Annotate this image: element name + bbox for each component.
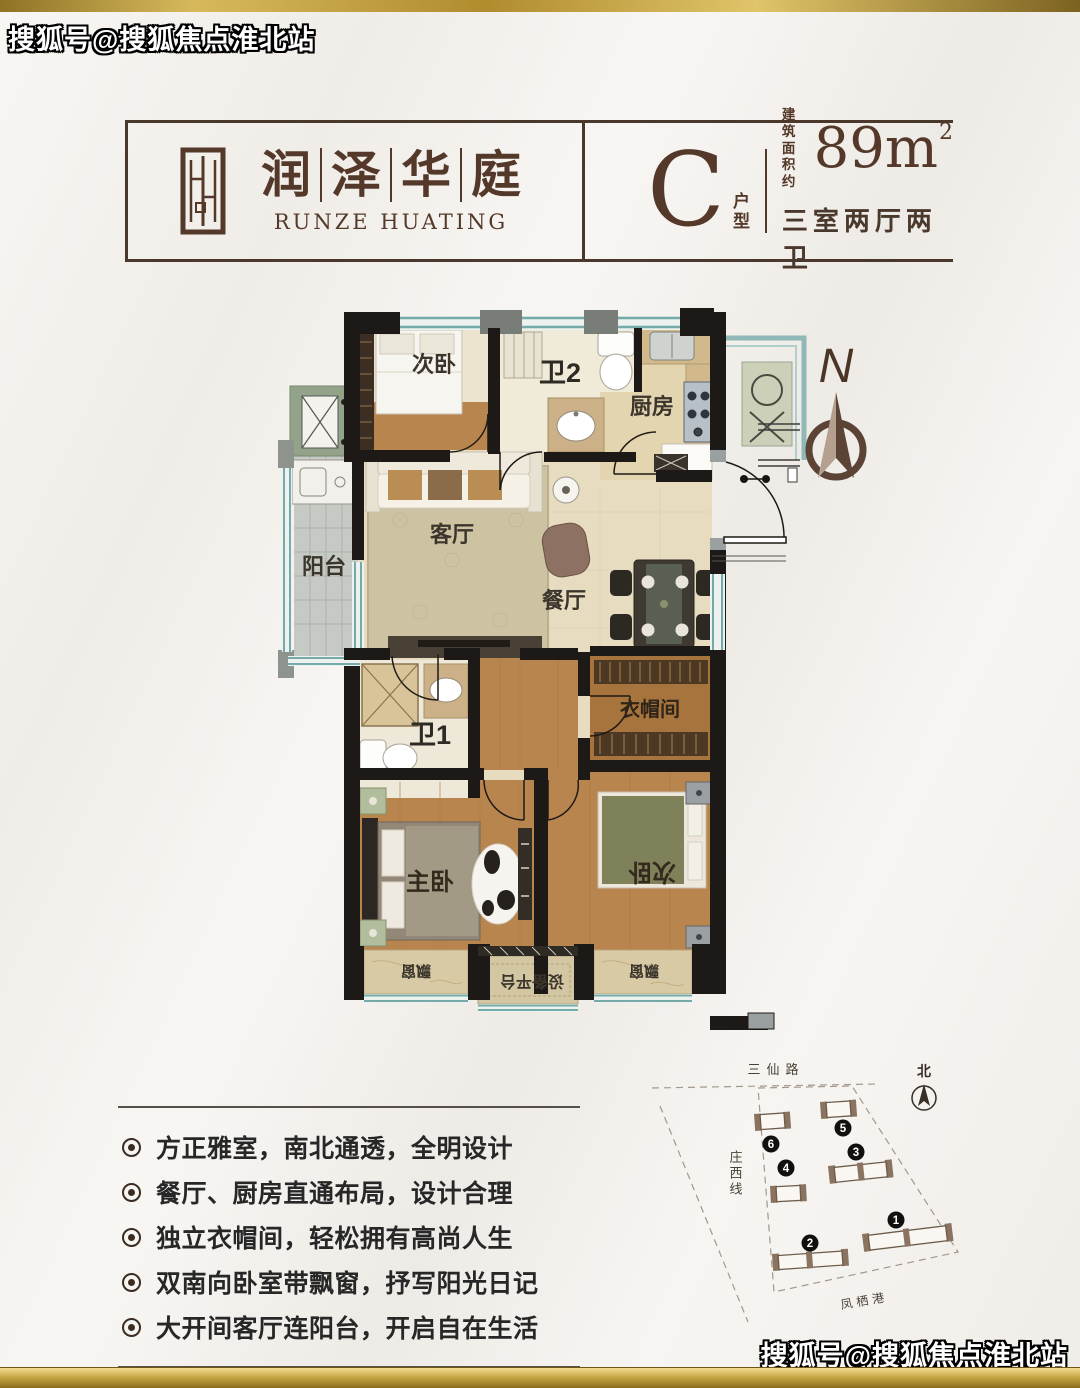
brand-char: 润 [252, 150, 320, 200]
area-exponent: 2 [939, 120, 953, 145]
label-closet: 衣帽间 [620, 697, 680, 721]
label-living: 客厅 [430, 522, 474, 547]
brand-logo-icon [180, 147, 226, 235]
north-label: 北 [917, 1063, 931, 1079]
brand-text: 润泽华庭 RUNZE HUATING [252, 148, 530, 234]
feature-item: 独立衣帽间，轻松拥有高尚人生 [122, 1219, 576, 1255]
building-number: 2 [807, 1238, 813, 1250]
bullet-icon [122, 1228, 141, 1247]
building-number: 1 [893, 1215, 900, 1227]
label-master: 主卧 [406, 869, 454, 896]
site-building-numbers: 1 2 3 4 5 6 [763, 1120, 905, 1252]
floorplan: N 次卧 卫2 厨房 阳台 客厅 餐厅 卫1 衣帽间 主卧 次卧 飘窗 设备平台… [270, 295, 890, 1055]
building-number: 5 [840, 1123, 847, 1135]
site-buildings [754, 1099, 954, 1270]
feature-item: 双南向卧室带飘窗，抒写阳光日记 [122, 1264, 576, 1300]
feature-item: 餐厅、厨房直通布局，设计合理 [122, 1174, 576, 1210]
brand-char: 华 [392, 150, 460, 200]
label-kitchen: 厨房 [630, 394, 674, 419]
bullet-icon [122, 1183, 141, 1202]
label-bedroom-bottom: 次卧 [628, 858, 676, 885]
brand-char: 庭 [462, 150, 530, 200]
road-label-top: 三仙路 [747, 1062, 804, 1077]
building-number: 4 [783, 1163, 790, 1175]
label-bay-window-left: 飘窗 [401, 962, 431, 980]
label-balcony: 阳台 [302, 554, 346, 579]
building-number: 3 [853, 1147, 859, 1159]
unit-info: C 户型 建 筑 面积约 89m2 三室两厅两卫 [585, 120, 953, 262]
label-dining: 餐厅 [542, 588, 586, 613]
exterior-details [726, 338, 804, 483]
area-label: 建 筑 面积约 [782, 107, 806, 191]
label-bath2: 卫2 [539, 358, 581, 388]
unit-divider [765, 149, 767, 233]
road-label-left: 庄西线 [728, 1149, 743, 1198]
gold-bar-top [0, 0, 1080, 12]
feature-item: 方正雅室，南北通透，全明设计 [122, 1129, 576, 1165]
watermark-top: 搜狐号@搜狐焦点淮北站 [8, 18, 315, 57]
site-north-icon: 北 [912, 1063, 936, 1110]
label-bedroom-top: 次卧 [412, 352, 456, 377]
poster-page: 搜狐号@搜狐焦点淮北站 润泽华庭 RUNZE HUATING C [0, 0, 1080, 1388]
rooms-summary: 三室两厅两卫 [782, 201, 953, 275]
compass-n-label: N [819, 340, 854, 393]
bullet-icon [122, 1273, 141, 1292]
building-number: 6 [768, 1139, 774, 1151]
bullet-icon [122, 1138, 141, 1157]
brand-box: 润泽华庭 RUNZE HUATING [125, 120, 585, 262]
brand-name-cn: 润泽华庭 [252, 148, 530, 202]
header: 润泽华庭 RUNZE HUATING C 户型 建 筑 面积约 89m2 三室两 [125, 120, 953, 262]
bullet-icon [122, 1318, 141, 1337]
feature-item: 大开间客厅连阳台，开启自在生活 [122, 1309, 576, 1345]
area-value: 89m2 [814, 121, 953, 177]
label-bay-window-right: 飘窗 [629, 962, 659, 980]
gold-bar-bottom [0, 1367, 1080, 1388]
unit-type-label: 户型 [727, 192, 752, 232]
site-roads [652, 1084, 958, 1322]
feature-list: 方正雅室，南北通透，全明设计 餐厅、厨房直通布局，设计合理 独立衣帽间，轻松拥有… [118, 1106, 580, 1368]
waterway-label-bottom: 凤栖港 [839, 1289, 889, 1312]
unit-spec: 建 筑 面积约 89m2 三室两厅两卫 [782, 107, 953, 275]
compass-icon: N [809, 340, 863, 478]
site-map: 三仙路 庄西线 凤栖港 北 1 2 3 4 5 6 [640, 1058, 970, 1324]
brand-name-en: RUNZE HUATING [274, 210, 508, 234]
label-bath1: 卫1 [409, 720, 451, 750]
unit-letter-block: C 户型 [647, 144, 752, 238]
unit-letter: C [647, 144, 725, 238]
label-equipment-platform: 设备平台 [500, 972, 564, 991]
brand-char: 泽 [322, 150, 390, 200]
